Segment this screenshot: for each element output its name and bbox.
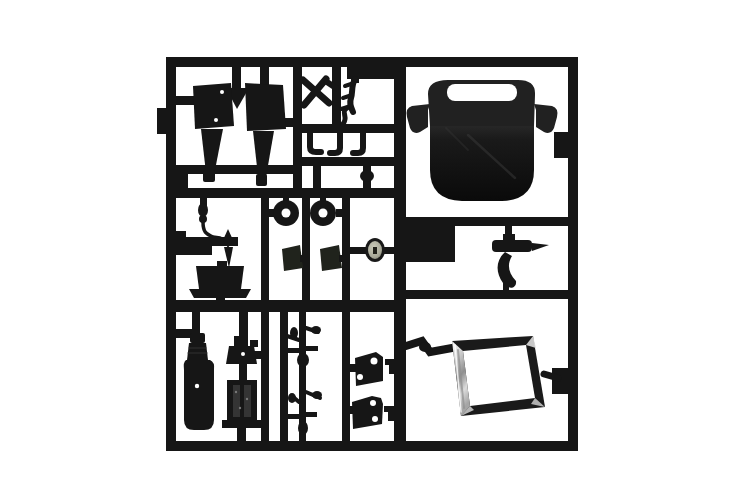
part-grease-gun-shape-5 bbox=[503, 283, 509, 292]
part-bottle-shape-0 bbox=[192, 312, 200, 334]
sprue-frame-shape-27 bbox=[394, 217, 455, 262]
part-valve-figure-shape-0 bbox=[239, 312, 248, 338]
part-detail-tree-shape-6 bbox=[306, 346, 318, 351]
sprue-frame-shape-28 bbox=[176, 96, 194, 105]
part-bottle-shape-1 bbox=[176, 329, 192, 338]
sprue-frame-shape-23 bbox=[280, 312, 288, 441]
part-s-pipe bbox=[343, 108, 347, 124]
part-valve-figure-shape-6 bbox=[239, 364, 247, 382]
part-air-cleaner-shape-1 bbox=[196, 266, 244, 289]
part-window-frame-shape-3 bbox=[463, 345, 535, 406]
sprue-frame-shape-4 bbox=[157, 108, 166, 134]
part-valve-figure-shape-1 bbox=[234, 336, 248, 346]
part-detail-tree-shape-12 bbox=[288, 414, 299, 419]
sprue-frame-shape-25 bbox=[554, 132, 568, 158]
part-detail-tree-shape-4 bbox=[311, 326, 321, 334]
part-detail-tree-shape-9 bbox=[288, 393, 296, 403]
part-step-block-shape-3 bbox=[235, 391, 237, 393]
part-spring-hanger-left-shape-2 bbox=[203, 170, 215, 182]
part-wheel-right-shape-3 bbox=[319, 209, 328, 218]
part-detail-tree-shape-5 bbox=[286, 348, 299, 353]
part-detail-tree-shape-11 bbox=[312, 391, 322, 399]
part-step-block-shape-1 bbox=[233, 385, 240, 417]
part-wheel-left-shape-3 bbox=[282, 209, 291, 218]
part-mirror-right-shape-1 bbox=[339, 255, 345, 262]
sprue-frame-shape-6 bbox=[176, 300, 400, 312]
part-spring-hanger-left-shape-4 bbox=[214, 118, 218, 122]
sprue-frame-shape-1 bbox=[166, 441, 578, 451]
part-step-block-shape-4 bbox=[246, 398, 248, 400]
part-spring-hanger-left-shape-3 bbox=[220, 90, 224, 94]
part-small-post-shape-0 bbox=[313, 166, 321, 188]
part-mirror-right-shape-0 bbox=[320, 245, 342, 271]
part-step-block-shape-6 bbox=[222, 420, 262, 428]
part-bracket-upper-shape-1 bbox=[355, 352, 383, 386]
part-spring-hanger-right-shape-0 bbox=[260, 67, 269, 85]
part-cab-roof-shape-5 bbox=[447, 84, 517, 101]
part-window-frame-shape-10 bbox=[544, 374, 558, 378]
part-bottle-shape-3 bbox=[187, 343, 208, 360]
sprue-frame-shape-2 bbox=[166, 57, 176, 451]
part-step-block-shape-0 bbox=[227, 380, 257, 422]
sprue-frame-shape-13 bbox=[332, 57, 341, 131]
part-air-cleaner bbox=[189, 261, 251, 304]
sprue-frame-shape-3 bbox=[568, 57, 578, 451]
part-detail-tree-shape-7 bbox=[297, 353, 309, 367]
part-bottle-shape-7 bbox=[195, 384, 199, 388]
part-filler-linkage-shape-3 bbox=[373, 247, 377, 254]
part-valve-figure-shape-2 bbox=[250, 340, 258, 347]
sprue-frame-shape-24 bbox=[342, 312, 350, 441]
part-bracket-lower-shape-2 bbox=[370, 400, 376, 406]
part-small-post-shape-2 bbox=[360, 170, 374, 182]
sprue-frame-shape-12 bbox=[176, 168, 188, 190]
part-valve-figure-shape-5 bbox=[254, 351, 265, 359]
part-bracket-upper-shape-2 bbox=[371, 358, 378, 365]
part-bottle-shape-2 bbox=[190, 333, 205, 343]
sprue-frame-shape-9 bbox=[406, 290, 568, 299]
part-detail-tree-shape-13 bbox=[306, 412, 317, 417]
sprue-frame-shape-18 bbox=[302, 198, 310, 300]
part-bracket-lower-shape-1 bbox=[352, 396, 383, 429]
part-step-block-shape-2 bbox=[244, 385, 251, 417]
part-s-pipe-shape-0 bbox=[343, 108, 347, 124]
sprue-frame-shape-16 bbox=[302, 157, 394, 166]
part-grease-gun-shape-2 bbox=[492, 240, 532, 252]
photo-stage bbox=[0, 0, 750, 500]
sprue-frame-shape-5 bbox=[176, 188, 400, 198]
sprue-frame-shape-19 bbox=[342, 198, 350, 300]
part-detail-tree-shape-14 bbox=[298, 421, 308, 435]
part-comb-pipe-shape-2 bbox=[345, 83, 354, 86]
part-gear-lever-shape-1 bbox=[198, 203, 208, 217]
part-step-block-shape-5 bbox=[239, 407, 241, 409]
sprue-gate-arrow-shape-0 bbox=[232, 67, 241, 91]
part-mirror-left-shape-0 bbox=[282, 245, 303, 271]
part-comb-pipe-shape-3 bbox=[343, 95, 352, 98]
part-step-block-shape-7 bbox=[237, 428, 246, 441]
part-bottle-shape-6 bbox=[184, 360, 214, 430]
sprue-frame-shape-17 bbox=[261, 198, 269, 300]
part-bracket-upper-shape-0 bbox=[350, 364, 356, 372]
part-spring-hanger-left-shape-0 bbox=[193, 83, 234, 129]
sprue-frame-shape-15 bbox=[302, 124, 394, 133]
sprue-frame-shape-26 bbox=[552, 368, 568, 394]
part-bracket-lower-shape-3 bbox=[372, 416, 378, 422]
sprue-frame-shape-22 bbox=[261, 312, 269, 441]
sprue-frame-shape-11 bbox=[176, 165, 302, 174]
part-wheel-right-shape-0 bbox=[336, 209, 343, 217]
part-air-cleaner-shape-3 bbox=[216, 298, 225, 304]
part-air-cleaner-shape-2 bbox=[189, 289, 251, 298]
part-mirror-left-shape-1 bbox=[300, 255, 305, 262]
part-spring-hanger-right-shape-1 bbox=[245, 83, 286, 131]
part-spring-hanger-right-shape-3 bbox=[256, 174, 267, 186]
sprue-photo bbox=[0, 0, 750, 500]
part-bracket-upper-shape-3 bbox=[357, 374, 363, 380]
part-valve-figure-shape-4 bbox=[241, 352, 245, 356]
part-window-frame-shape-1 bbox=[419, 342, 431, 352]
